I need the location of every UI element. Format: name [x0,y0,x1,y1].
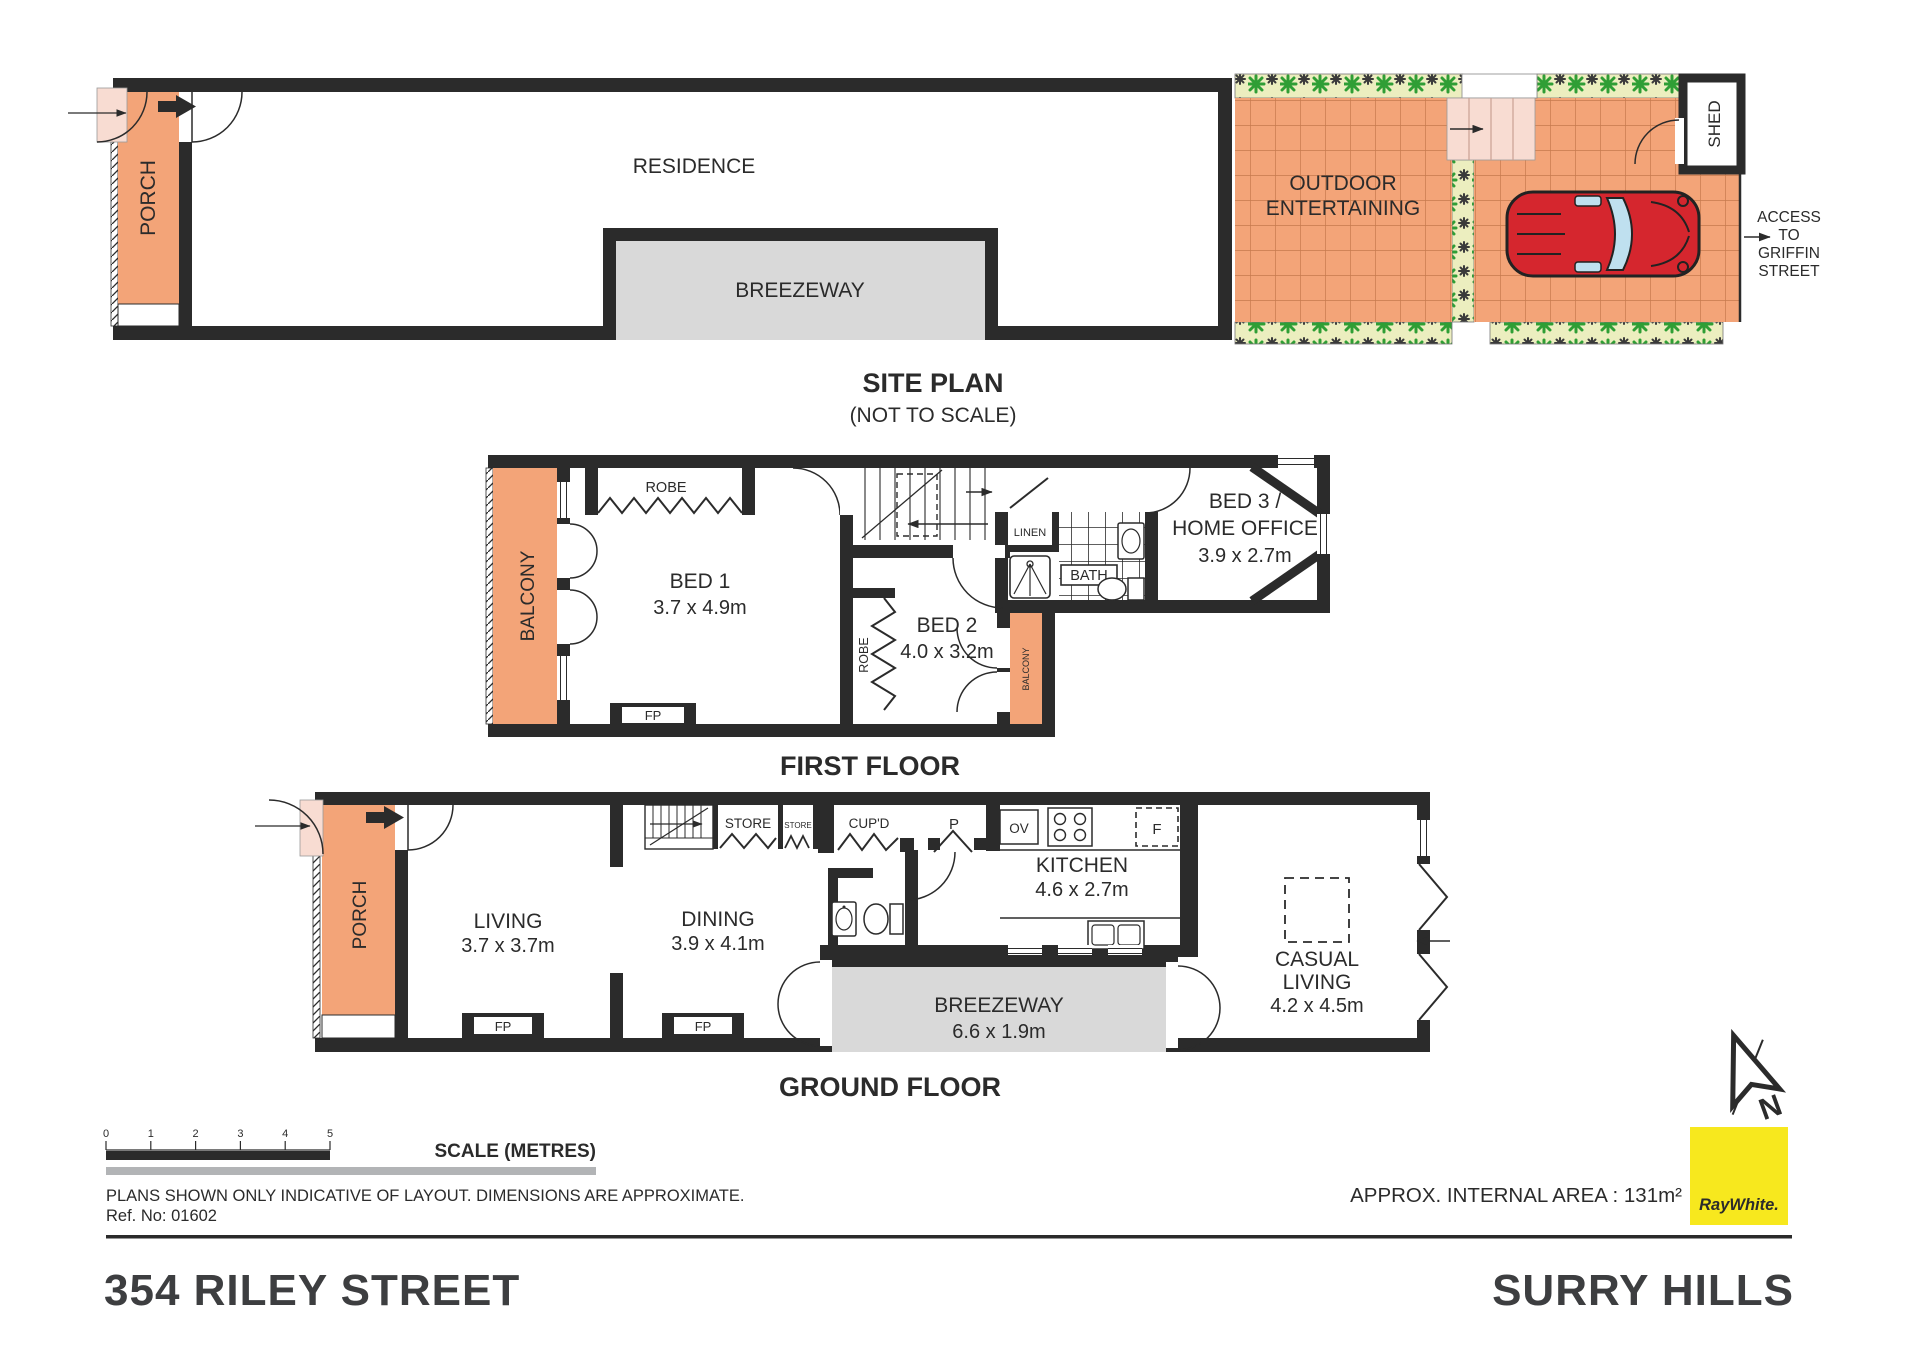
access-label-4: STREET [1758,263,1820,280]
footer-rule [106,1235,1792,1239]
scale-tick-1: 1 [148,1128,154,1140]
bed2-robe-label: ROBE [857,637,871,672]
internal-area: APPROX. INTERNAL AREA : 131m² [1350,1184,1682,1207]
gf-stairs-icon [645,805,713,849]
scale-tick-0: 0 [103,1128,109,1140]
floorplan-page: PORCH RESIDENCE BREEZEWAY OUTDOOR ENTERT… [0,0,1920,1357]
casual-label-2: LIVING [1283,971,1352,994]
bed3-label-2: HOME OFFICE [1172,517,1318,540]
bath-toilet-icon [1098,578,1144,600]
raywhite-label: RayWhite. [1699,1196,1779,1214]
dining-label: DINING [681,908,755,931]
kitchen-label: KITCHEN [1036,854,1128,877]
site-plan: PORCH RESIDENCE BREEZEWAY OUTDOOR ENTERT… [68,74,1821,427]
living-label: LIVING [474,910,543,933]
gf-porch-label: PORCH [350,881,371,950]
scale-tick-5: 5 [327,1128,333,1140]
gf-breezeway-label: BREEZEWAY [934,994,1064,1017]
ref-no: Ref. No: 01602 [106,1207,217,1225]
site-plan-subtitle: (NOT TO SCALE) [850,404,1017,427]
casual-label-1: CASUAL [1275,948,1359,971]
dining-fireplace-icon: FP [662,1013,744,1038]
scale-divider [106,1167,596,1175]
cooktop-icon [1048,808,1092,846]
disclaimer: PLANS SHOWN ONLY INDICATIVE OF LAYOUT. D… [106,1187,744,1205]
bed3-dims: 3.9 x 2.7m [1198,545,1291,567]
north-label: N [1755,1089,1787,1127]
ground-floor-title: GROUND FLOOR [779,1072,1001,1102]
bed1-fireplace-icon: FP [610,703,696,726]
access-label-2: TO [1778,227,1799,244]
scale-tick-4: 4 [282,1128,288,1140]
living-fireplace-icon: FP [462,1013,544,1038]
raywhite-logo: RayWhite. [1690,1127,1788,1225]
bath-basin-icon [1118,523,1144,559]
store-large-label: STORE [725,816,771,831]
bed3-label-1: BED 3 / [1209,490,1282,513]
car-icon [1507,192,1699,276]
north-arrow-icon: N [1707,1027,1791,1137]
pantry-label: P [949,816,959,833]
site-plan-title: SITE PLAN [862,368,1003,398]
gf-breezeway: BREEZEWAY 6.6 x 1.9m [778,955,1220,1052]
access-label-1: ACCESS [1757,209,1821,226]
ff-balcony-label: BALCONY [518,550,539,641]
living-dims: 3.7 x 3.7m [461,935,554,957]
scale-title: SCALE (METRES) [435,1141,597,1162]
linen-label: LINEN [1014,527,1046,539]
gf-breezeway-dims: 6.6 x 1.9m [952,1021,1045,1043]
bed2-label: BED 2 [917,614,978,637]
scale-bar: 0 1 2 3 4 5 SCALE (METRES) [103,1128,596,1175]
gf-right-openings [1417,820,1450,1020]
bed2-dims: 4.0 x 3.2m [900,641,993,663]
suburb: SURRY HILLS [1492,1266,1794,1315]
first-floor-title: FIRST FLOOR [780,751,960,781]
fridge-icon: F [1136,808,1178,846]
living-fp-label: FP [495,1019,512,1034]
store-small-label: STORE [784,821,811,830]
bed1-label: BED 1 [670,570,731,593]
sink-icon [1088,921,1144,949]
gf-front-step [300,800,323,856]
site-breezeway: BREEZEWAY [603,228,998,340]
site-porch-label: PORCH [137,160,160,236]
outdoor-label-2: ENTERTAINING [1266,197,1420,220]
access-label-3: GRIFFIN [1758,245,1820,262]
wc-toilet-icon [864,904,903,934]
first-floor-plan: BALCONY ROBE BED 1 3.7 x 4.9m [486,455,1330,781]
ground-floor-plan: PORCH LIVING 3.7 x 3.7m FP DINING 3.9 x … [255,792,1450,1102]
front-step [97,88,127,142]
bed2-balcony-label: BALCONY [1021,647,1031,690]
shed-label: SHED [1705,100,1724,147]
kitchen-dims: 4.6 x 2.7m [1035,879,1128,901]
ff-robe-label: ROBE [645,480,686,496]
shower-icon [1010,556,1050,598]
address: 354 RILEY STREET [104,1266,520,1315]
bed1-fp-label: FP [645,708,662,723]
wc-basin-icon [832,902,856,936]
scale-tick-2: 2 [193,1128,199,1140]
footer: 0 1 2 3 4 5 SCALE (METRES) PLANS SHOWN O… [103,1027,1794,1315]
site-breezeway-label: BREEZEWAY [735,279,865,302]
dining-dims: 3.9 x 4.1m [671,933,764,955]
fridge-label: F [1152,821,1161,838]
outdoor-label-1: OUTDOOR [1289,172,1396,195]
bed1-dims: 3.7 x 4.9m [653,597,746,619]
residence-label: RESIDENCE [633,155,756,178]
oven-label: OV [1009,821,1029,836]
scale-tick-3: 3 [237,1128,243,1140]
access-note: ACCESS TO GRIFFIN STREET [1744,209,1821,280]
dining-fp-label: FP [695,1019,712,1034]
casual-dims: 4.2 x 4.5m [1270,995,1363,1017]
ff-balcony-hatch [486,468,493,724]
cupd-label: CUP'D [849,816,890,831]
